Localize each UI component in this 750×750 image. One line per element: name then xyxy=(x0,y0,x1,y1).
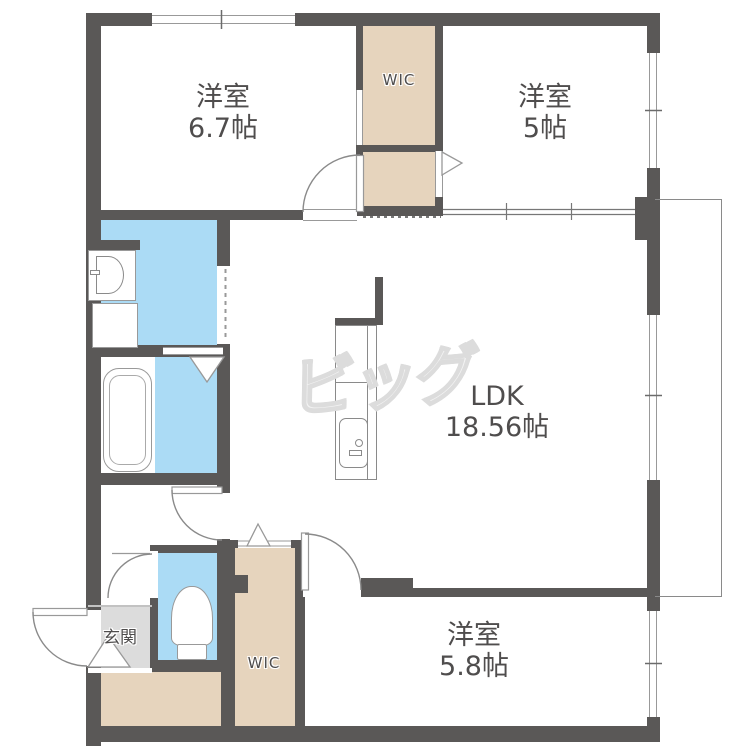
bedroom1-door-leaf xyxy=(357,156,364,212)
hall-door-leaf xyxy=(172,487,222,494)
bedroom3-door-arc xyxy=(305,534,361,590)
bedroom3-door-leaf xyxy=(302,533,309,590)
bedroom1-label: 洋室 6.7帖 xyxy=(143,82,303,144)
bedroom2-name: 洋室 xyxy=(518,82,572,113)
hall-door-arc xyxy=(172,490,222,540)
bath-folding-door-triangle xyxy=(190,357,224,382)
bedroom1-name: 洋室 xyxy=(196,82,250,113)
floor-plan: 洋室 6.7帖 洋室 5帖 LDK 18.56帖 洋室 5.8帖 WIC WIC… xyxy=(0,0,750,750)
entrance-door-arc xyxy=(33,612,87,666)
wic2-label: WIC xyxy=(232,653,296,673)
bedroom2-size: 5帖 xyxy=(523,113,567,144)
bedroom3-size: 5.8帖 xyxy=(439,651,509,682)
bedroom3-name: 洋室 xyxy=(447,620,501,651)
entrance-door-leaf xyxy=(33,609,87,616)
bedroom3-label: 洋室 5.8帖 xyxy=(394,620,554,682)
wic1-folding-door-triangle xyxy=(442,152,462,175)
ldk-size: 18.56帖 xyxy=(445,412,549,443)
wic2-folding-door-triangle xyxy=(247,524,270,546)
bedroom1-size: 6.7帖 xyxy=(188,113,258,144)
bedroom2-label: 洋室 5帖 xyxy=(465,82,625,144)
sliding-partition xyxy=(443,203,635,220)
watermark-logo: ビッグ xyxy=(292,321,483,428)
genkan-label: 玄関 xyxy=(90,626,150,650)
bedroom1-door-arc xyxy=(303,155,360,212)
toilet-door-arc xyxy=(108,554,152,598)
wic1-label: WIC xyxy=(362,70,436,90)
